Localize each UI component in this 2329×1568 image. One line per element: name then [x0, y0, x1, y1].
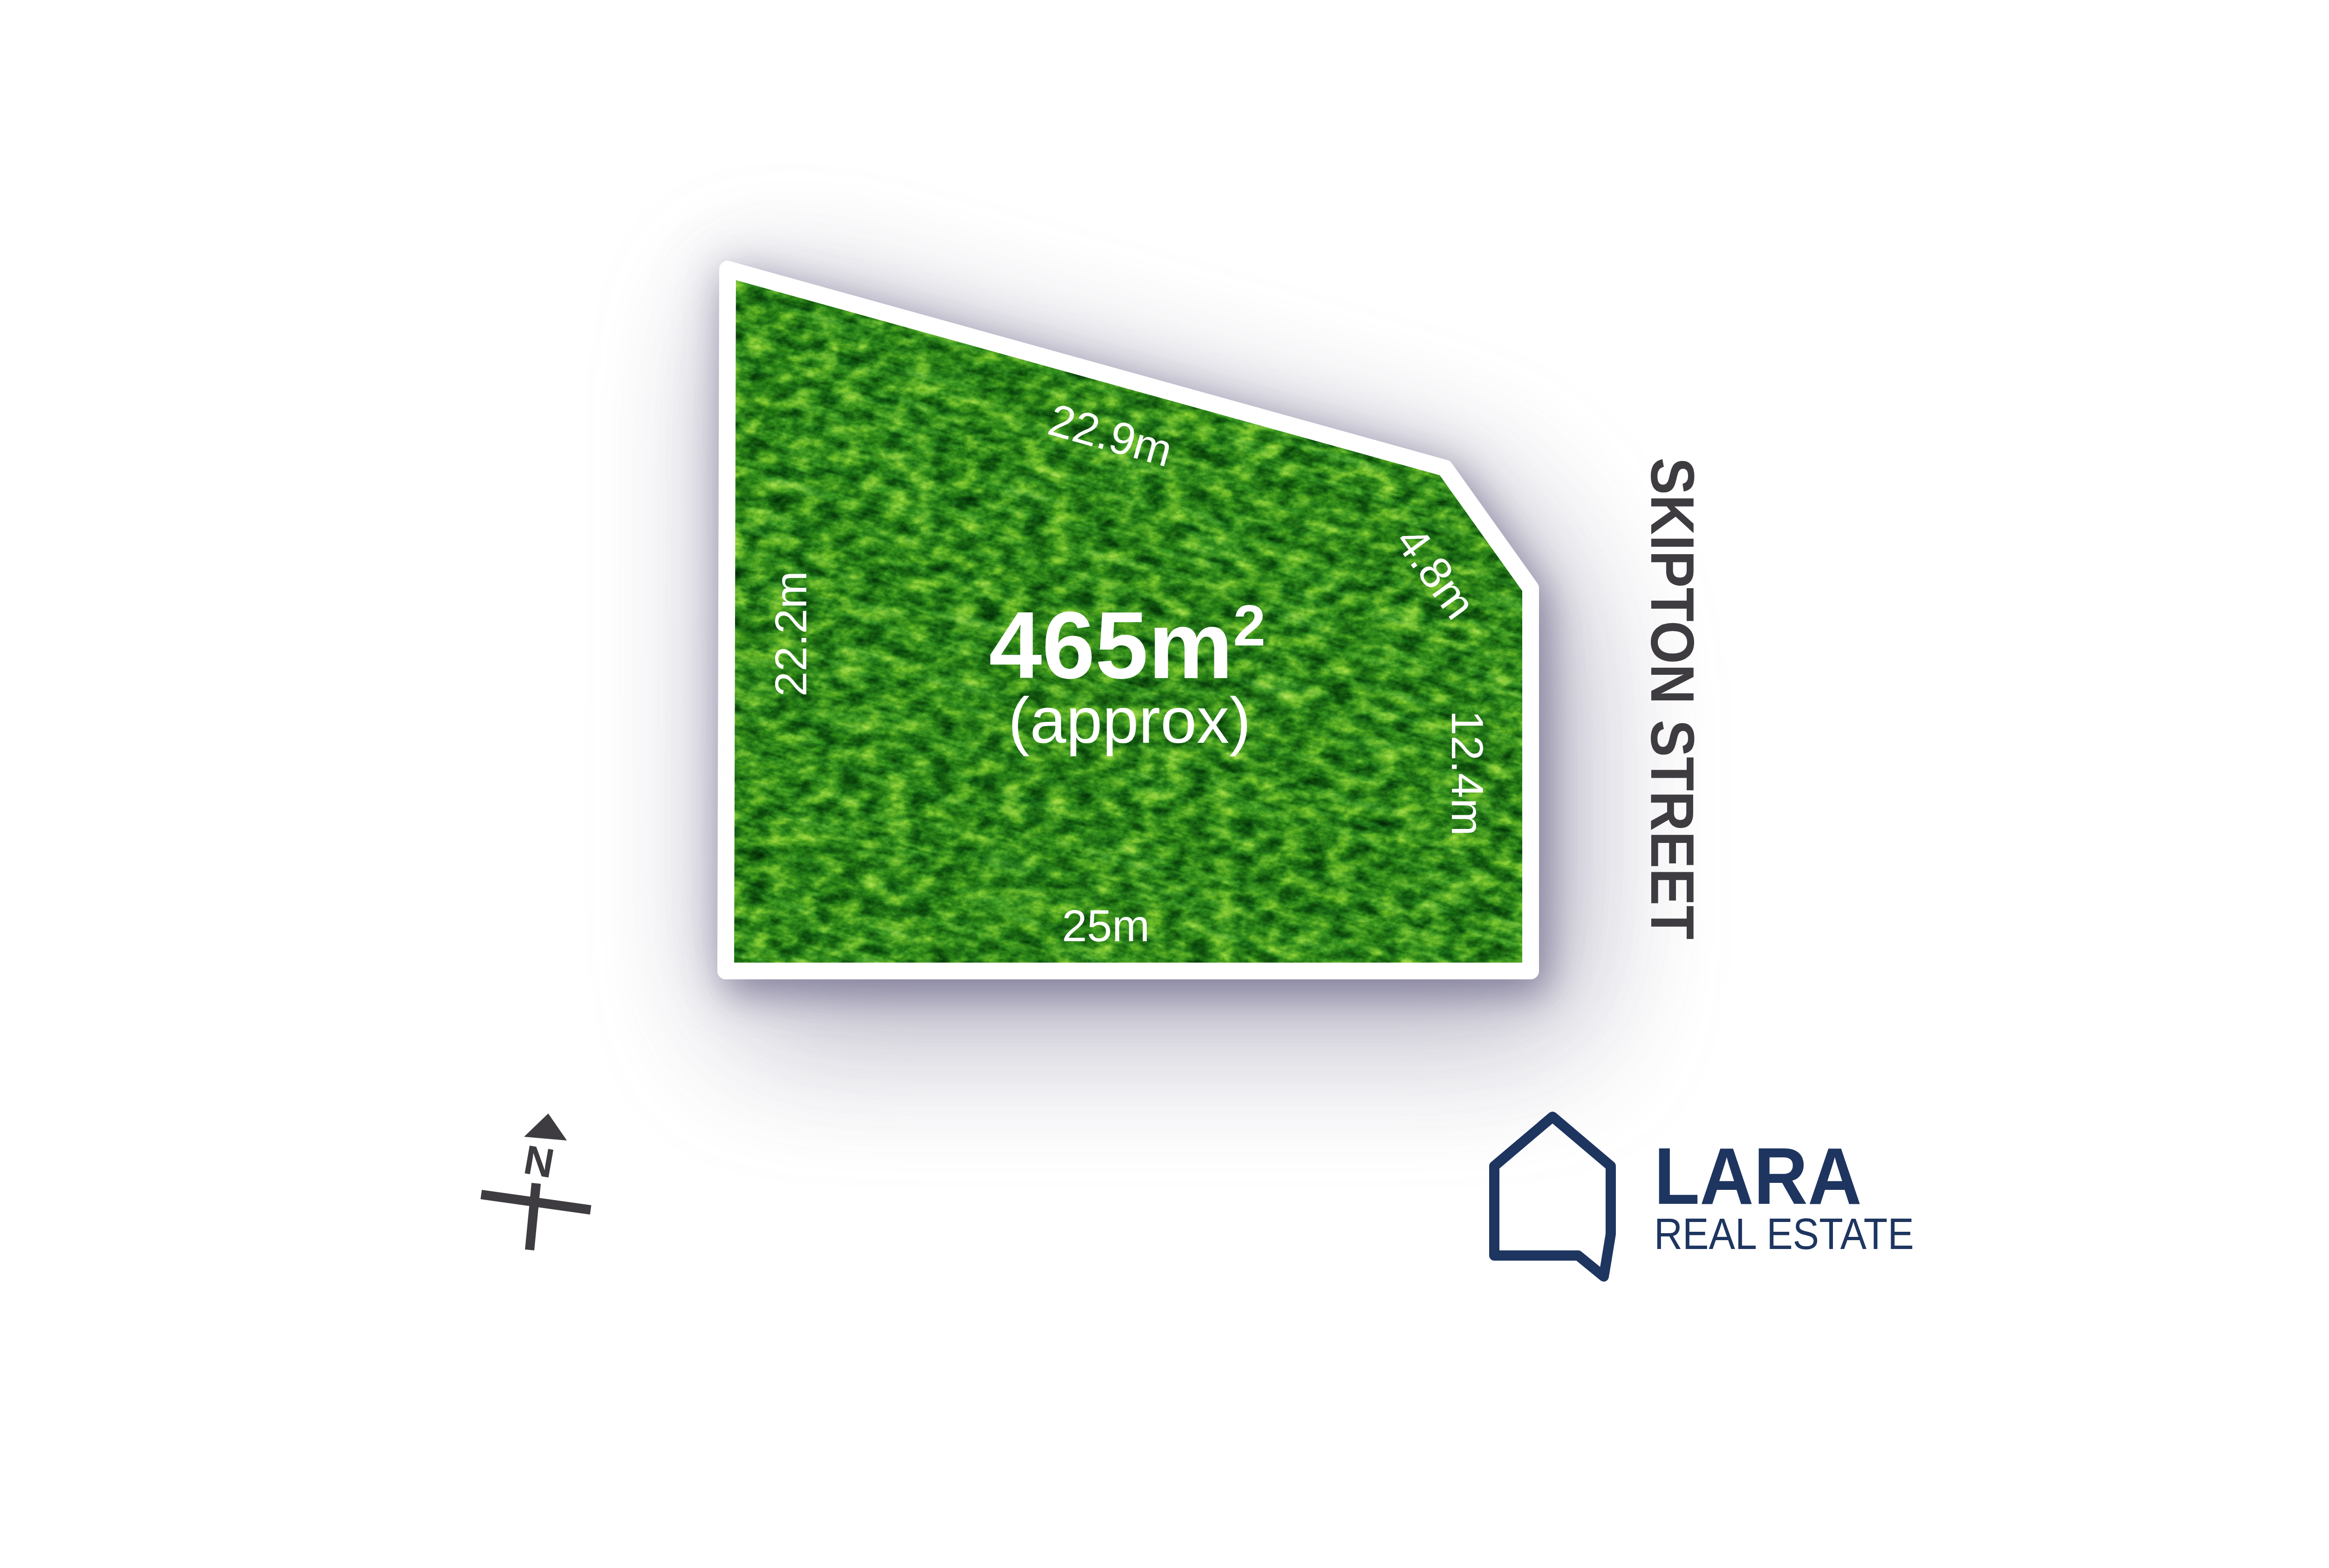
house-icon — [1494, 1117, 1611, 1276]
north-label: N — [520, 1136, 558, 1187]
street-name-label: SKIPTON STREET — [1638, 458, 1707, 940]
north-compass: N — [481, 1113, 591, 1250]
area-value: 465m — [989, 591, 1233, 698]
area-superscript: 2 — [1233, 593, 1266, 658]
logo-brand: LARA — [1654, 1131, 1862, 1221]
lara-logo: LARA REAL ESTATE — [1494, 1117, 1914, 1276]
land-parcel: 465m2 (approx) 22.9m 4.8m 12.4m 25m 22.2… — [431, 0, 1845, 1307]
dimension-right-label: 12.4m — [1442, 710, 1493, 836]
logo-tagline: REAL ESTATE — [1654, 1209, 1914, 1258]
compass-cross-icon — [481, 1183, 591, 1250]
area-label: 465m2 — [989, 591, 1266, 698]
lot-flyer: 465m2 (approx) 22.9m 4.8m 12.4m 25m 22.2… — [0, 0, 2329, 1568]
area-approx-label: (approx) — [1008, 684, 1251, 757]
compass-cross-vertical — [530, 1183, 536, 1250]
dimension-left-label: 22.2m — [765, 571, 816, 697]
dimension-bottom-label: 25m — [1062, 900, 1150, 951]
flyer-graphic: 465m2 (approx) 22.9m 4.8m 12.4m 25m 22.2… — [0, 0, 2329, 1568]
